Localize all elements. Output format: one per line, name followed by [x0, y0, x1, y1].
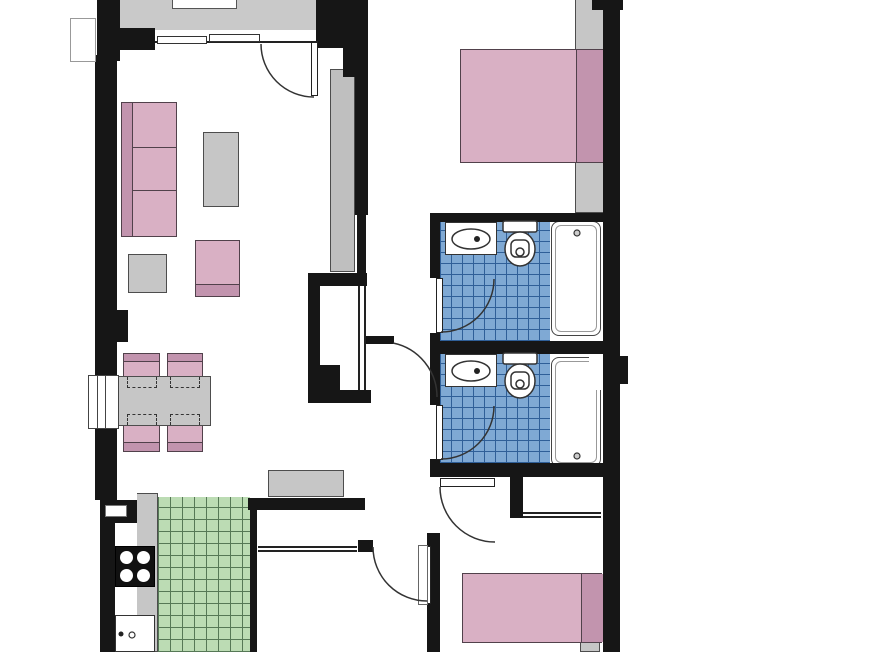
wall	[316, 0, 346, 48]
dining-chair	[167, 424, 203, 452]
bedroom2-bed	[462, 573, 602, 643]
terrace-planter	[172, 0, 237, 9]
bed-headboard	[576, 50, 604, 162]
bed-mattress	[461, 50, 576, 162]
chair-tuck-mark	[170, 377, 200, 388]
wall-pillar	[616, 356, 628, 384]
burner	[137, 569, 150, 582]
wall	[430, 341, 620, 354]
bed-headboard	[581, 574, 603, 642]
armchair-front	[196, 284, 239, 296]
chair-seat	[124, 425, 159, 442]
bedroom2-door-swing	[440, 487, 495, 542]
bed-mattress	[463, 574, 581, 642]
storage-closet-slider	[258, 546, 357, 548]
armchair-seat	[196, 241, 239, 284]
burner	[120, 551, 133, 564]
wall	[430, 213, 440, 278]
bedroom2-closet-slider	[523, 516, 601, 518]
bathroom2-washbasin	[445, 354, 497, 387]
burner	[120, 569, 133, 582]
entry-sliding-panel	[209, 34, 260, 42]
wall	[120, 28, 155, 50]
bathtub-inner-rim	[555, 225, 597, 332]
exterior-unit	[70, 18, 96, 62]
chair-back	[124, 354, 159, 362]
bedroom1-double-bed	[460, 49, 603, 163]
kitchen-floor-tiles	[158, 497, 250, 652]
bedroom2-closet-slider	[523, 512, 601, 514]
kitchen-sink	[115, 615, 155, 652]
wall	[603, 10, 620, 652]
dining-chair	[123, 424, 160, 452]
bathroom1-bathtub	[551, 221, 601, 336]
wall	[250, 498, 257, 652]
chair-back	[168, 442, 202, 451]
wall	[430, 213, 620, 222]
wall-stub	[358, 540, 373, 552]
wall	[357, 215, 366, 275]
chair-tuck-mark	[127, 414, 157, 425]
sofa-backrest	[122, 103, 133, 236]
hall-closet-corner	[317, 365, 340, 392]
wall	[430, 463, 620, 477]
bathtub-inner-rim	[555, 361, 597, 463]
window-panes	[97, 376, 106, 428]
entry-sliding-panel	[157, 36, 207, 44]
bathroom2-door-leaf	[436, 405, 443, 460]
sofa-cushion	[133, 103, 176, 148]
side-table	[128, 254, 167, 293]
sofa-cushion	[133, 191, 176, 236]
entry-door-leaf	[311, 42, 318, 96]
hall-closet-door	[364, 286, 366, 390]
storage-closet-slider	[258, 550, 357, 552]
wall	[355, 0, 368, 215]
burner	[137, 551, 150, 564]
wall	[95, 428, 117, 500]
chair-back	[168, 354, 202, 362]
wall-stub	[366, 336, 394, 344]
entry-door-swing	[261, 44, 314, 97]
chair-back	[124, 442, 159, 451]
floor-plan	[0, 0, 870, 652]
wall	[592, 0, 623, 10]
chair-tuck-mark	[127, 377, 157, 388]
chair-seat	[168, 425, 202, 442]
closet-wall	[510, 468, 523, 518]
duct	[418, 545, 428, 605]
coffee-table	[203, 132, 239, 207]
wall	[248, 498, 365, 510]
kitchen-window	[105, 505, 127, 517]
chair-tuck-mark	[170, 414, 200, 425]
stove	[115, 546, 155, 587]
sofa-cushion	[133, 148, 176, 191]
bathroom2-bathtub	[551, 357, 601, 467]
living-wardrobe	[330, 69, 355, 272]
bathroom1-washbasin	[445, 222, 497, 255]
armchair	[195, 240, 240, 297]
wall	[97, 0, 120, 61]
dining-window	[88, 375, 119, 429]
bedroom2-door-leaf	[440, 478, 495, 487]
hall-closet-door	[358, 286, 360, 390]
wall-pillar	[113, 310, 128, 342]
sofa	[121, 102, 177, 237]
bathroom1-door-leaf	[436, 278, 443, 333]
wall	[100, 523, 115, 652]
sideboard	[268, 470, 344, 497]
